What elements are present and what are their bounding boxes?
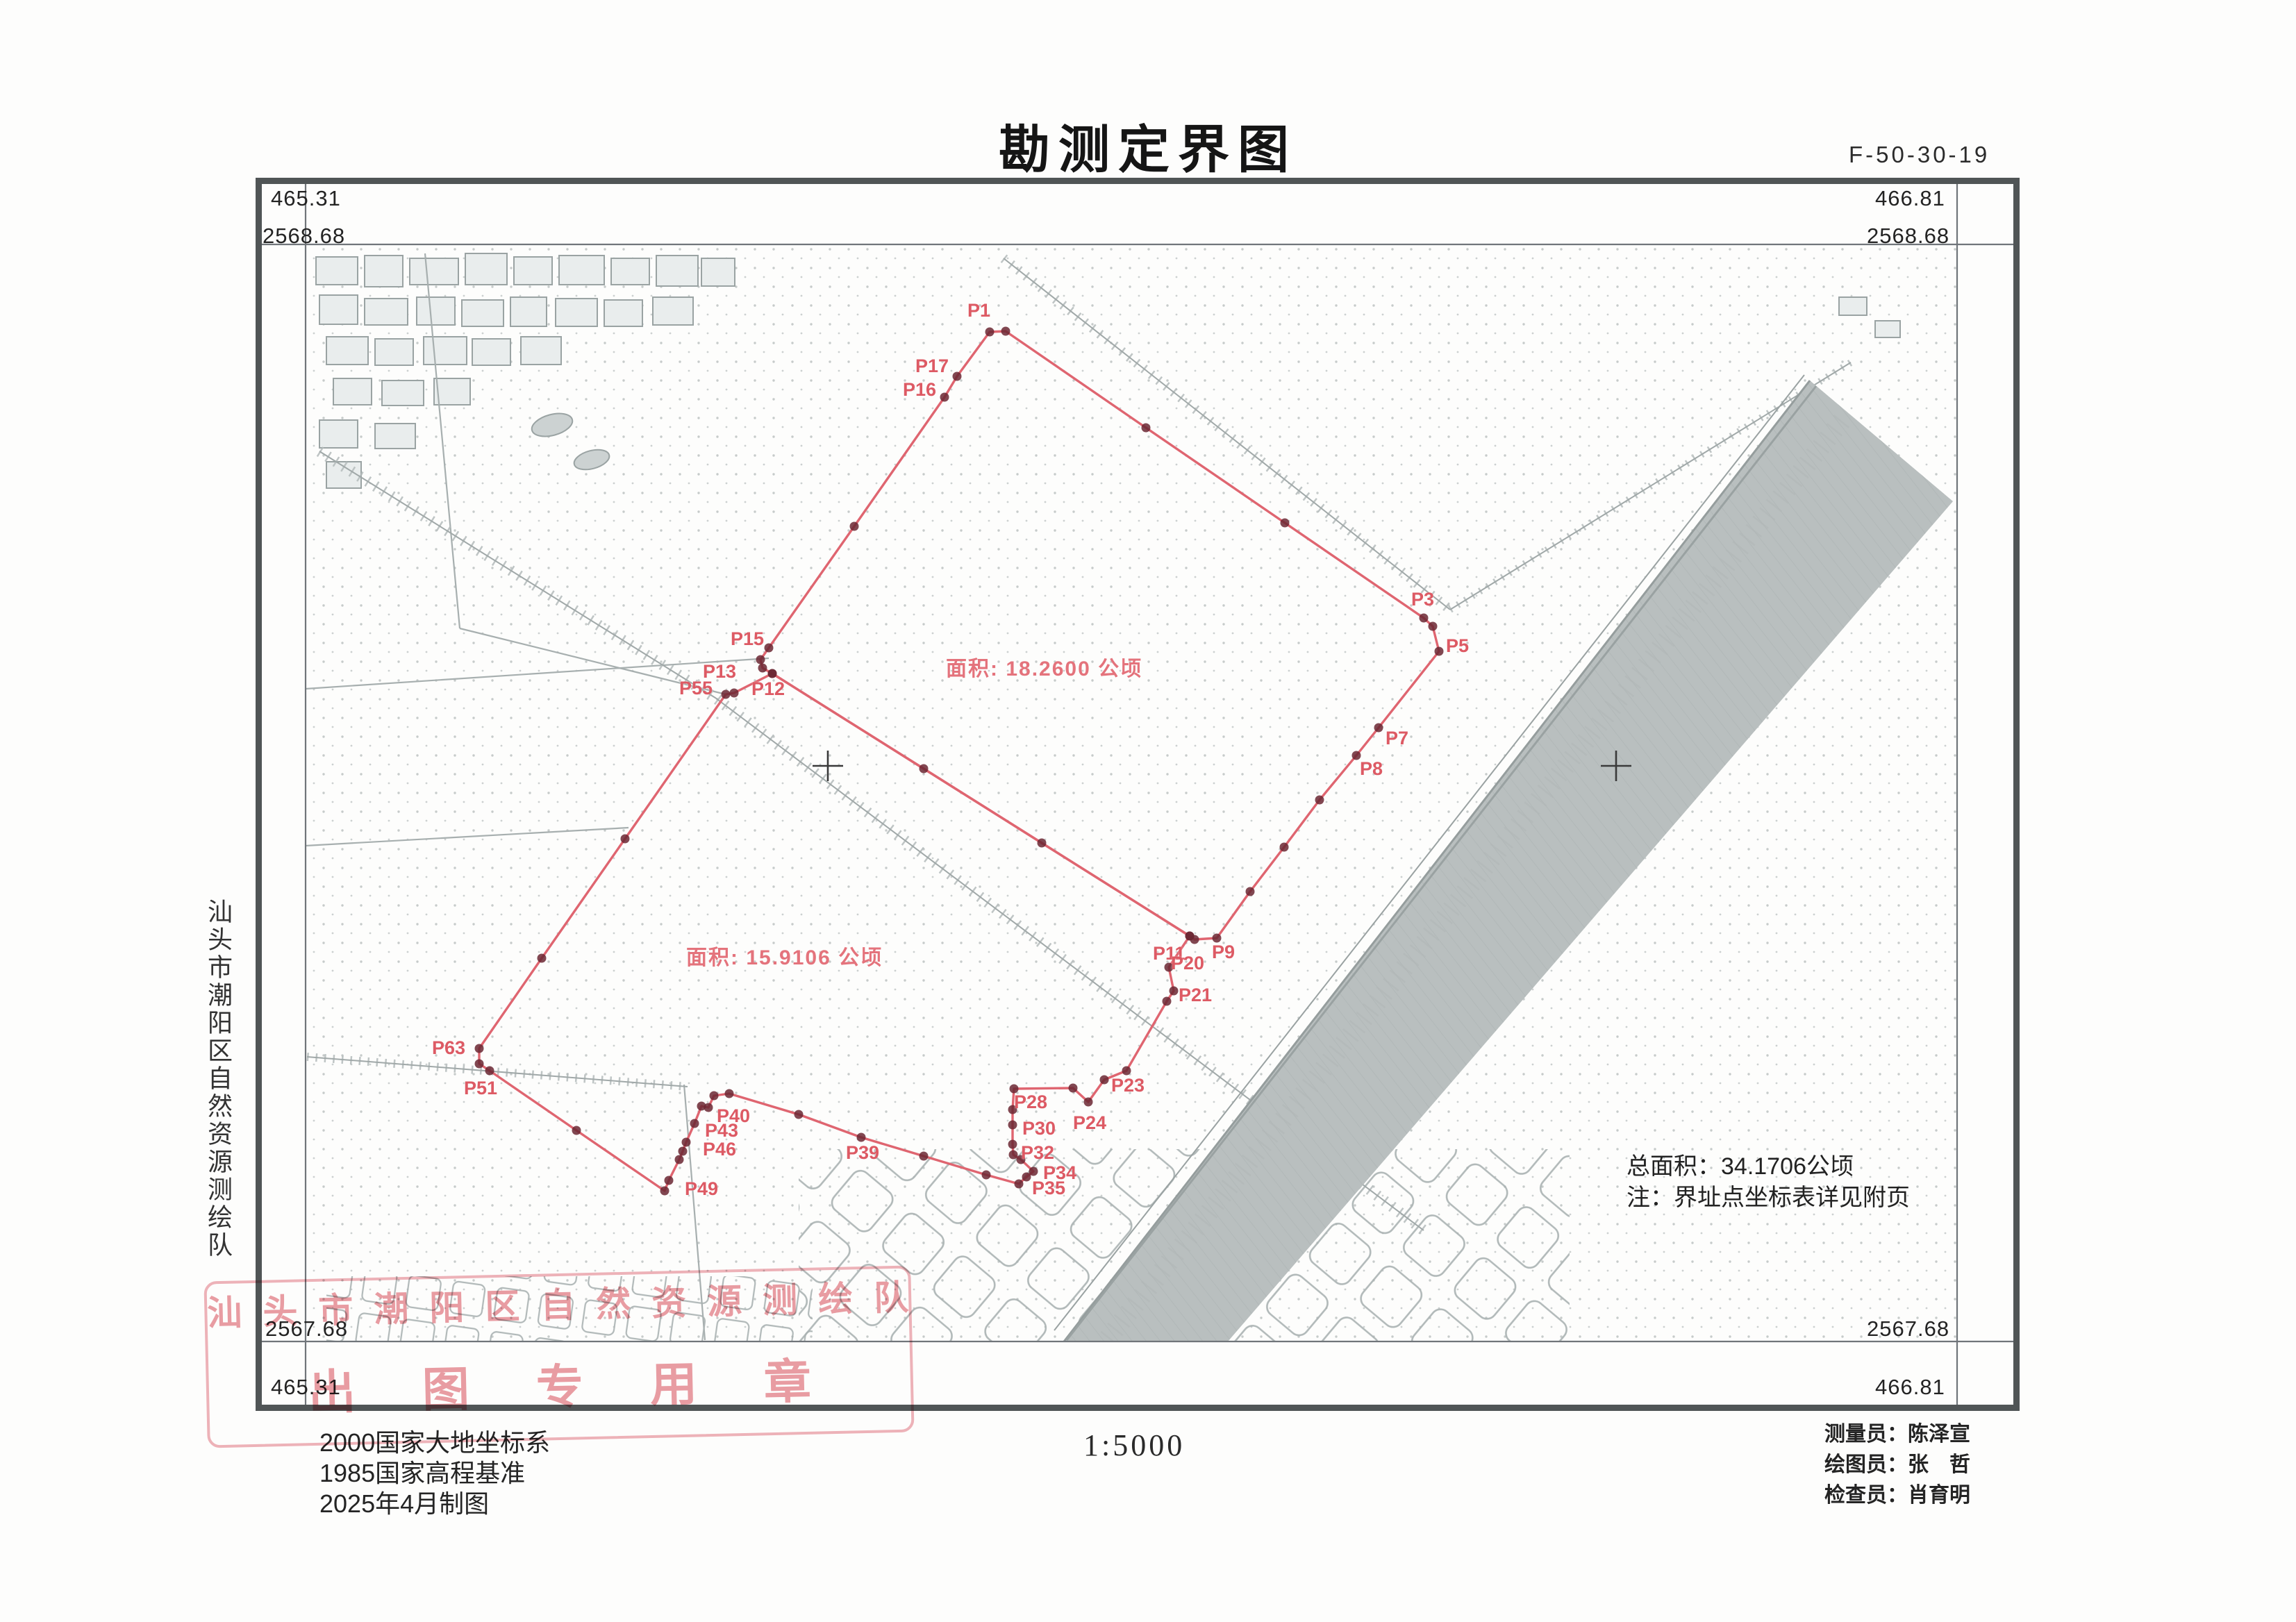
boundary-vertex-dot	[475, 1060, 484, 1069]
boundary-vertex-dot	[1010, 1085, 1019, 1094]
corner-coord-bottom-left-x: 465.31	[271, 1375, 341, 1400]
boundary-vertex-dot	[1213, 934, 1222, 943]
boundary-vertex-dot	[690, 1119, 699, 1128]
datum-line: 2000国家大地坐标系	[319, 1428, 550, 1458]
boundary-vertex-dot	[768, 669, 777, 678]
boundary-vertex-dot	[1100, 1076, 1109, 1085]
boundary-vertex-dot	[1069, 1084, 1078, 1093]
basemap-svg	[262, 184, 2013, 1405]
boundary-vertex-dot	[940, 393, 949, 402]
boundary-vertex-dot	[795, 1110, 804, 1119]
credit-line: 测量员：陈泽宣	[1824, 1419, 1970, 1450]
boundary-vertex-dot	[1429, 622, 1438, 631]
boundary-vertex-dot	[1280, 843, 1289, 852]
coordinate-table-note: 注：界址点坐标表详见附页	[1627, 1182, 1910, 1214]
boundary-vertex-dot	[682, 1138, 691, 1147]
credits-block: 测量员：陈泽宣绘图员：张 哲检查员：肖育明	[1824, 1419, 1970, 1511]
boundary-vertex-dot	[1008, 1121, 1017, 1130]
datum-line: 2025年4月制图	[319, 1489, 550, 1519]
corner-coord-bottom-right-y: 2567.68	[1867, 1316, 1949, 1341]
credit-line: 检查员：肖育明	[1824, 1480, 1970, 1511]
corner-coord-bottom-right-x: 466.81	[1875, 1375, 1945, 1400]
boundary-vertex-dot	[1015, 1180, 1024, 1189]
boundary-vertex-dot	[1165, 963, 1174, 972]
boundary-vertex-dot	[1246, 887, 1255, 896]
sheet-number: F-50-30-19	[1849, 142, 1990, 168]
boundary-vertex-dot	[920, 764, 929, 774]
boundary-vertex-dot	[704, 1103, 713, 1112]
credit-line: 绘图员：张 哲	[1824, 1450, 1970, 1480]
boundary-vertex-dot	[621, 835, 630, 844]
boundary-vertex-dot	[722, 690, 731, 699]
corner-coord-top-left-y: 2568.68	[263, 224, 345, 249]
boundary-vertex-dot	[665, 1176, 674, 1185]
boundary-vertex-dot	[765, 644, 774, 653]
corner-coord-top-left-x: 465.31	[271, 186, 341, 211]
boundary-vertex-dot	[1017, 1155, 1026, 1164]
boundary-vertex-dot	[850, 522, 859, 531]
boundary-vertex-dot	[1435, 647, 1444, 656]
boundary-vertex-dot	[1122, 1067, 1131, 1076]
boundary-vertex-dot	[756, 655, 765, 664]
boundary-vertex-dot	[758, 664, 767, 673]
boundary-vertex-dot	[660, 1187, 669, 1196]
survey-demarcation-map-page: { "page": { "title": "勘测定界图", "sheet_num…	[0, 0, 2296, 1622]
boundary-vertex-dot	[1001, 327, 1010, 336]
boundary-vertex-dot	[1186, 932, 1195, 941]
boundary-vertex-dot	[982, 1171, 991, 1180]
boundary-vertex-dot	[1170, 987, 1179, 996]
datum-line: 1985国家高程基准	[319, 1458, 550, 1489]
boundary-vertex-dot	[710, 1092, 719, 1101]
corner-coord-bottom-left-y: 2567.68	[265, 1316, 348, 1341]
map-scale-label: 1:5000	[1083, 1428, 1185, 1463]
organization-vertical-label: 汕头市潮阳区自然资源测绘队	[200, 898, 236, 1260]
boundary-vertex-dot	[725, 1089, 734, 1098]
boundary-vertex-dot	[1142, 424, 1151, 433]
boundary-vertex-dot	[485, 1067, 494, 1076]
boundary-vertex-dot	[1029, 1167, 1038, 1176]
map-notes: 总面积：34.1706公顷 注：界址点坐标表详见附页	[1627, 1151, 1910, 1214]
boundary-vertex-dot	[538, 954, 547, 963]
boundary-vertex-dot	[1084, 1098, 1093, 1107]
boundary-vertex-dot	[1163, 997, 1172, 1006]
boundary-vertex-dot	[1352, 751, 1361, 760]
corner-coord-top-right-y: 2568.68	[1867, 224, 1949, 249]
boundary-vertex-dot	[1420, 614, 1429, 623]
boundary-vertex-dot	[675, 1155, 684, 1164]
total-area-note: 总面积：34.1706公顷	[1627, 1151, 1910, 1182]
boundary-vertex-dot	[1038, 839, 1047, 848]
boundary-vertex-dot	[1008, 1140, 1017, 1149]
boundary-vertex-dot	[1008, 1105, 1017, 1114]
boundary-vertex-dot	[1374, 724, 1383, 733]
boundary-vertex-dot	[857, 1133, 866, 1142]
boundary-vertex-dot	[1315, 796, 1324, 805]
boundary-vertex-dot	[1281, 519, 1290, 528]
corner-coord-top-right-x: 466.81	[1875, 186, 1945, 211]
boundary-vertex-dot	[679, 1147, 688, 1156]
boundary-vertex-dot	[730, 689, 739, 698]
boundary-vertex-dot	[475, 1044, 484, 1053]
boundary-vertex-dot	[572, 1126, 581, 1135]
boundary-vertex-dot	[1009, 1151, 1018, 1160]
datum-info-block: 2000国家大地坐标系1985国家高程基准2025年4月制图	[319, 1428, 550, 1519]
boundary-vertex-dot	[953, 372, 962, 381]
boundary-vertex-dot	[920, 1152, 929, 1161]
boundary-vertex-dot	[985, 328, 995, 337]
